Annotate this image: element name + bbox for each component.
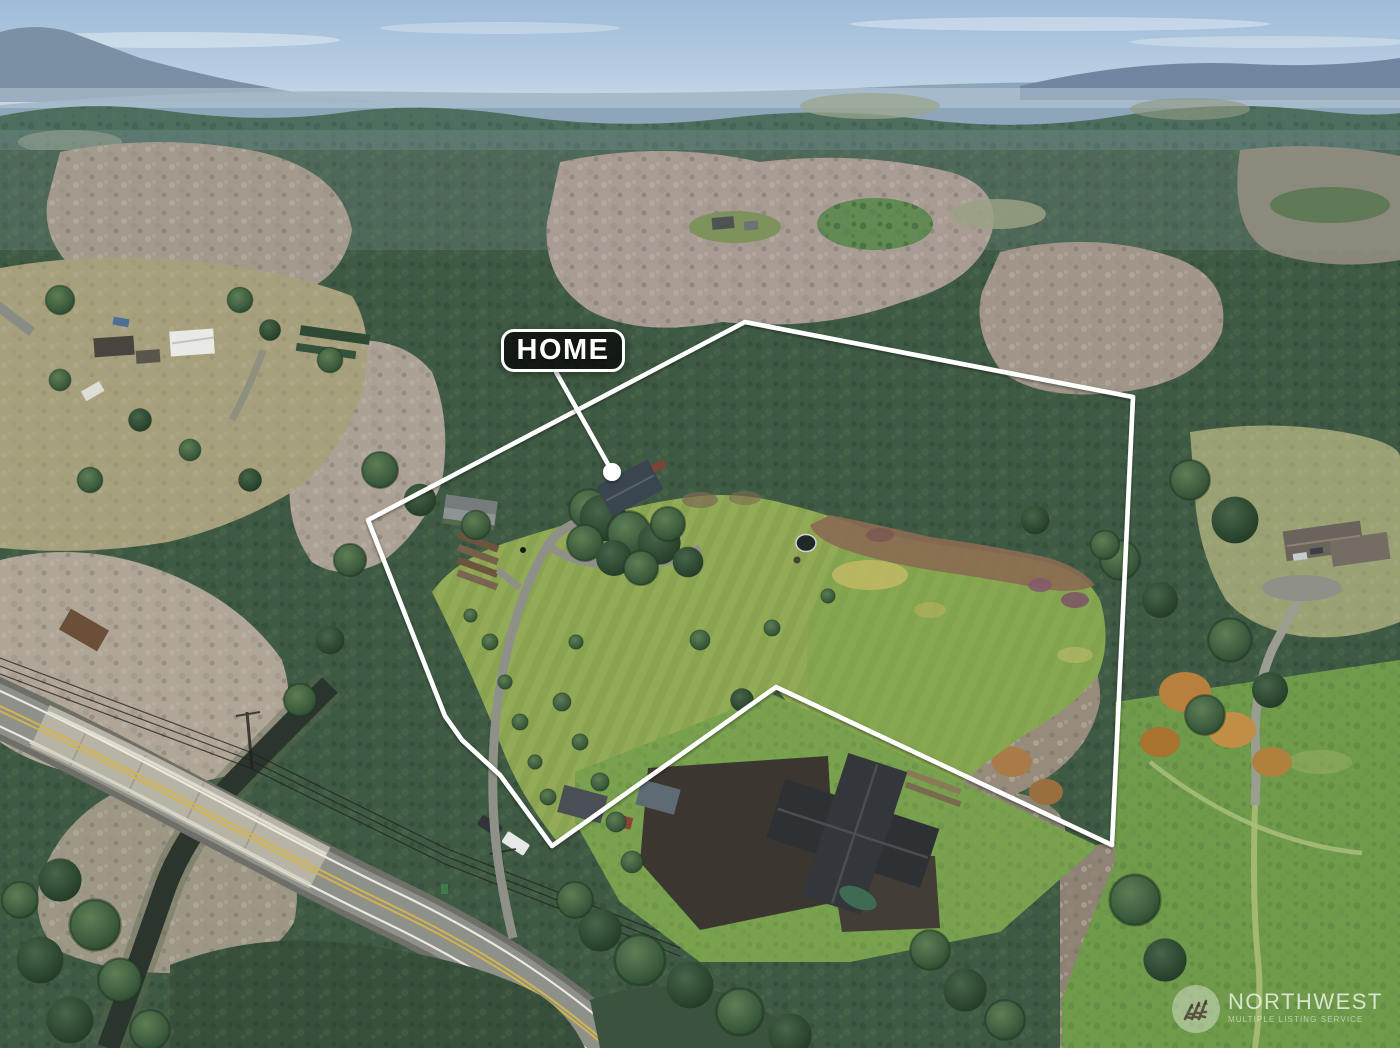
dead-grass-patch [832, 560, 908, 590]
photo-scene [0, 0, 1400, 1048]
trampoline [796, 535, 816, 552]
mls-watermark: NORTHWEST MULTIPLE LISTING SERVICE [1172, 985, 1383, 1033]
farm-barn-roof [93, 336, 134, 358]
clearing-north [689, 211, 781, 243]
watermark-tagline: MULTIPLE LISTING SERVICE [1228, 1015, 1383, 1024]
road-sign [441, 884, 448, 894]
home-marker-dot [603, 463, 621, 481]
fire-pit [794, 557, 801, 564]
pine-trees-icon [1172, 985, 1220, 1033]
farm-shed-roof [136, 349, 161, 364]
cloud [380, 22, 620, 34]
watermark-brand: NORTHWEST [1228, 991, 1383, 1013]
parking-area [1262, 575, 1342, 601]
cabin-shed-roof [744, 220, 759, 230]
watermark-text: NORTHWEST MULTIPLE LISTING SERVICE [1228, 985, 1383, 1024]
aerial-property-photo: HOME NORTHWEST MULTIPLE LISTING SERVICE [0, 0, 1400, 1048]
cloud [1130, 36, 1400, 48]
animal [520, 547, 526, 553]
home-callout-label: HOME [501, 329, 625, 372]
cloud [850, 17, 1270, 31]
cabin-roof [712, 216, 735, 230]
